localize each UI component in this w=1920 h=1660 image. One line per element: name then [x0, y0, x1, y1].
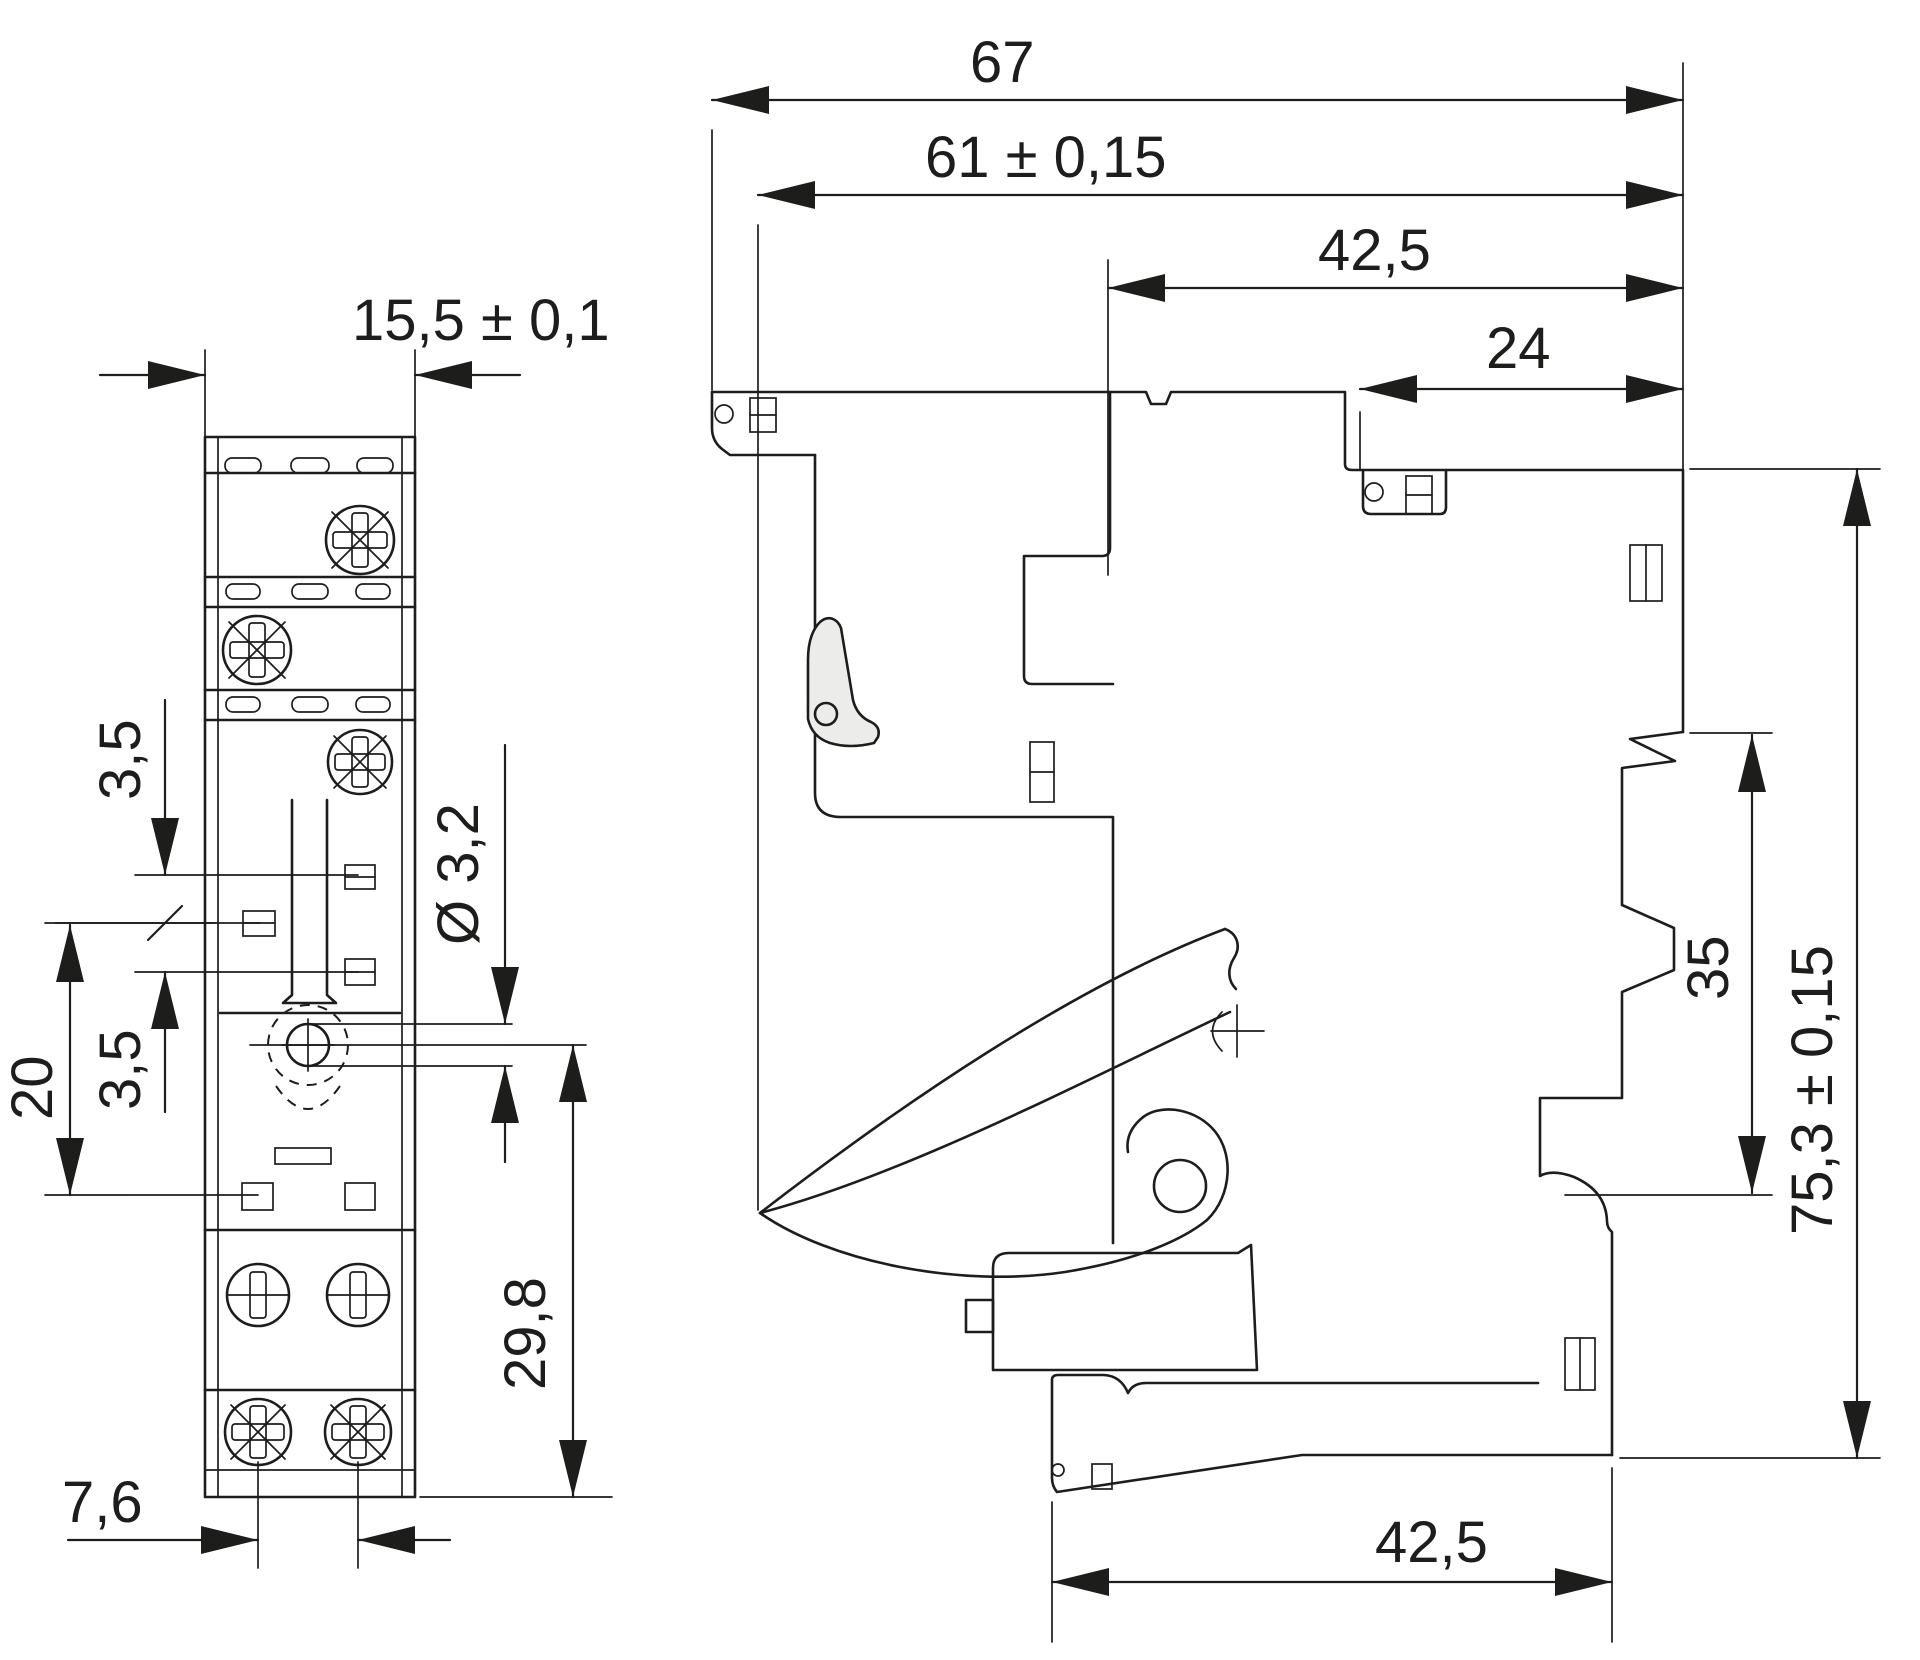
slot-offset-upper-label: 3,5 — [88, 719, 153, 800]
dim-top-depth: 24 — [1360, 316, 1683, 403]
front-width-label: 15,5 ± 0,1 — [352, 288, 610, 353]
side-stub — [966, 1300, 993, 1332]
side-view: 67 61 ± 0,15 42,5 24 — [712, 30, 1880, 1642]
dim-upper-depth: 42,5 — [1108, 218, 1683, 302]
top-depth-label: 24 — [1486, 316, 1551, 381]
front-body-outline — [205, 437, 415, 1497]
dim-total-depth: 67 — [712, 30, 1683, 114]
front-slotted-screws — [205, 1230, 415, 1390]
terminal-screw-3 — [328, 730, 392, 794]
dim-body-depth: 61 ± 0,15 — [758, 125, 1683, 209]
front-socket-area — [55, 800, 400, 1013]
dim-din-rail-width: 35 — [1565, 733, 1772, 1195]
side-right-flange — [1363, 470, 1446, 514]
body-depth-label: 61 ± 0,15 — [925, 125, 1166, 190]
slot-span-label: 20 — [0, 1055, 65, 1120]
terminal-screw-1 — [326, 506, 394, 574]
mounting-hole-label: Ø 3,2 — [426, 803, 491, 945]
side-bottom-outline — [1052, 1375, 1612, 1492]
retaining-clip — [760, 929, 1264, 1277]
upper-depth-label: 42,5 — [1318, 218, 1431, 283]
side-top-outline — [712, 392, 1683, 732]
slot-offset-lower-label: 3,5 — [88, 1029, 153, 1110]
din-rail-channel — [1540, 732, 1683, 1455]
din-rail-width-label: 35 — [1676, 935, 1741, 1000]
dim-mounting-hole: Ø 3,2 — [426, 745, 519, 1162]
front-bottom-screws — [205, 1399, 415, 1470]
dim-front-width: 15,5 ± 0,1 — [100, 288, 610, 437]
total-height-label: 75,3 ± 0,15 — [1780, 945, 1845, 1235]
dim-screw-spacing: 7,6 — [62, 1462, 450, 1568]
side-left-flange — [712, 392, 815, 455]
total-depth-label: 67 — [970, 30, 1035, 95]
hole-to-bottom-label: 29,8 — [493, 1277, 558, 1390]
dim-slot-offset-lower: 3,5 — [88, 972, 179, 1112]
side-front-steps — [1024, 392, 1113, 684]
front-separator-2 — [205, 690, 415, 720]
drawing-canvas: 15,5 ± 0,1 3,5 3,5 20 — [0, 0, 1920, 1660]
front-separator-1 — [205, 577, 415, 607]
screw-spacing-label: 7,6 — [62, 1470, 143, 1535]
terminal-screw-2 — [223, 616, 291, 684]
dim-slot-offset-upper: 3,5 — [88, 700, 182, 940]
dim-total-height: 75,3 ± 0,15 — [1620, 469, 1880, 1458]
front-top-cap — [205, 458, 415, 473]
front-view: 15,5 ± 0,1 3,5 3,5 20 — [0, 288, 612, 1568]
bottom-depth-label: 42,5 — [1375, 1510, 1488, 1575]
side-upper-body — [815, 455, 1113, 1243]
dim-bottom-depth: 42,5 — [1052, 1468, 1612, 1642]
side-mid-block — [993, 1245, 1257, 1370]
release-lever — [808, 618, 879, 746]
technical-drawing: 15,5 ± 0,1 3,5 3,5 20 — [0, 0, 1920, 1660]
